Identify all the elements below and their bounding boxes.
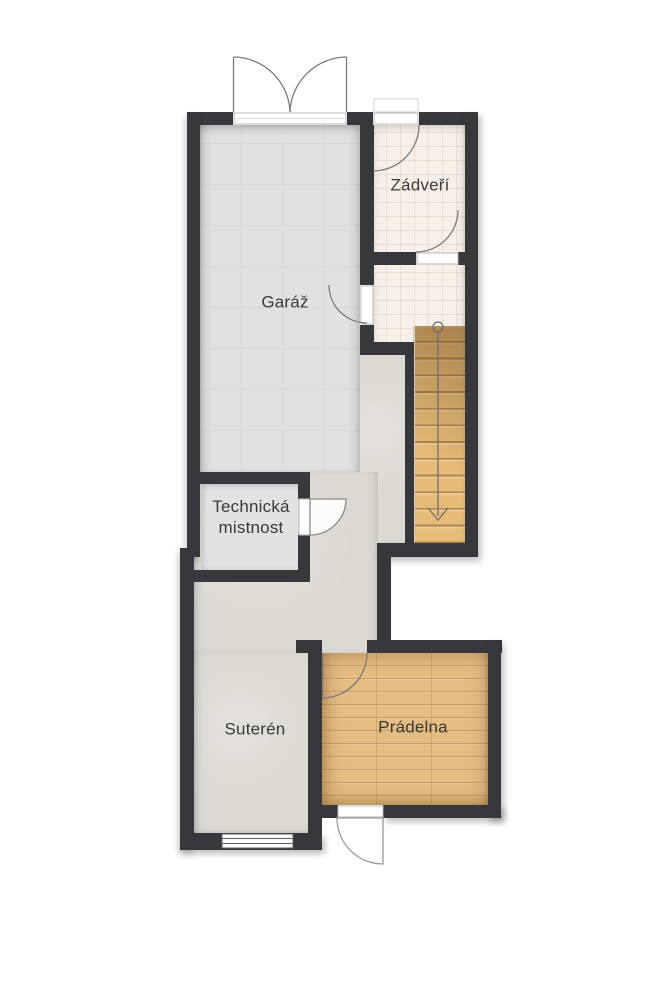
wall-left-lower [180, 548, 194, 850]
wall-right-upper [465, 112, 478, 543]
wall-corridor-right [377, 543, 391, 653]
wall-top-between-doors [347, 112, 373, 125]
floor-plan: Garáž Zádveří Technická mistnost Suterén… [0, 0, 667, 1000]
room-label-technicka-line1: Technická [212, 496, 289, 517]
wall-suteren-bottom [180, 833, 322, 850]
wall-garage-right-upper [360, 125, 374, 285]
room-label-technicka: Technická mistnost [212, 496, 289, 538]
wall-left-upper [187, 112, 200, 557]
wall-stair-bottom [377, 543, 478, 557]
garage-double-door [234, 57, 347, 124]
wall-pradelna-top-stub [296, 640, 322, 653]
pradelna-exterior-door [337, 806, 383, 864]
wall-technicka-right-upper [298, 484, 310, 499]
wall-stair-side [405, 342, 414, 543]
wall-suteren-pradelna-divider [308, 653, 322, 848]
room-label-suteren: Suterén [225, 719, 286, 740]
staircase [413, 326, 468, 543]
room-label-technicka-line2: mistnost [212, 517, 289, 538]
room-label-garaz: Garáž [261, 292, 308, 313]
wall-zadveri-bottom-left [374, 252, 416, 265]
room-label-pradelna: Prádelna [378, 717, 448, 738]
wall-pradelna-top [367, 640, 502, 653]
wall-zadveri-bottom-right [458, 252, 465, 265]
wall-technicka-bottom [192, 570, 310, 582]
wall-technicka-top [192, 472, 310, 484]
room-label-zadveri: Zádveří [390, 175, 449, 196]
wall-right-lower [488, 640, 501, 818]
room-zadveri-hall-floor [372, 125, 465, 343]
room-suteren-floor-lower [194, 653, 322, 838]
wall-pradelna-bottom-right [383, 805, 501, 818]
wall-pradelna-bottom-left [322, 805, 338, 818]
